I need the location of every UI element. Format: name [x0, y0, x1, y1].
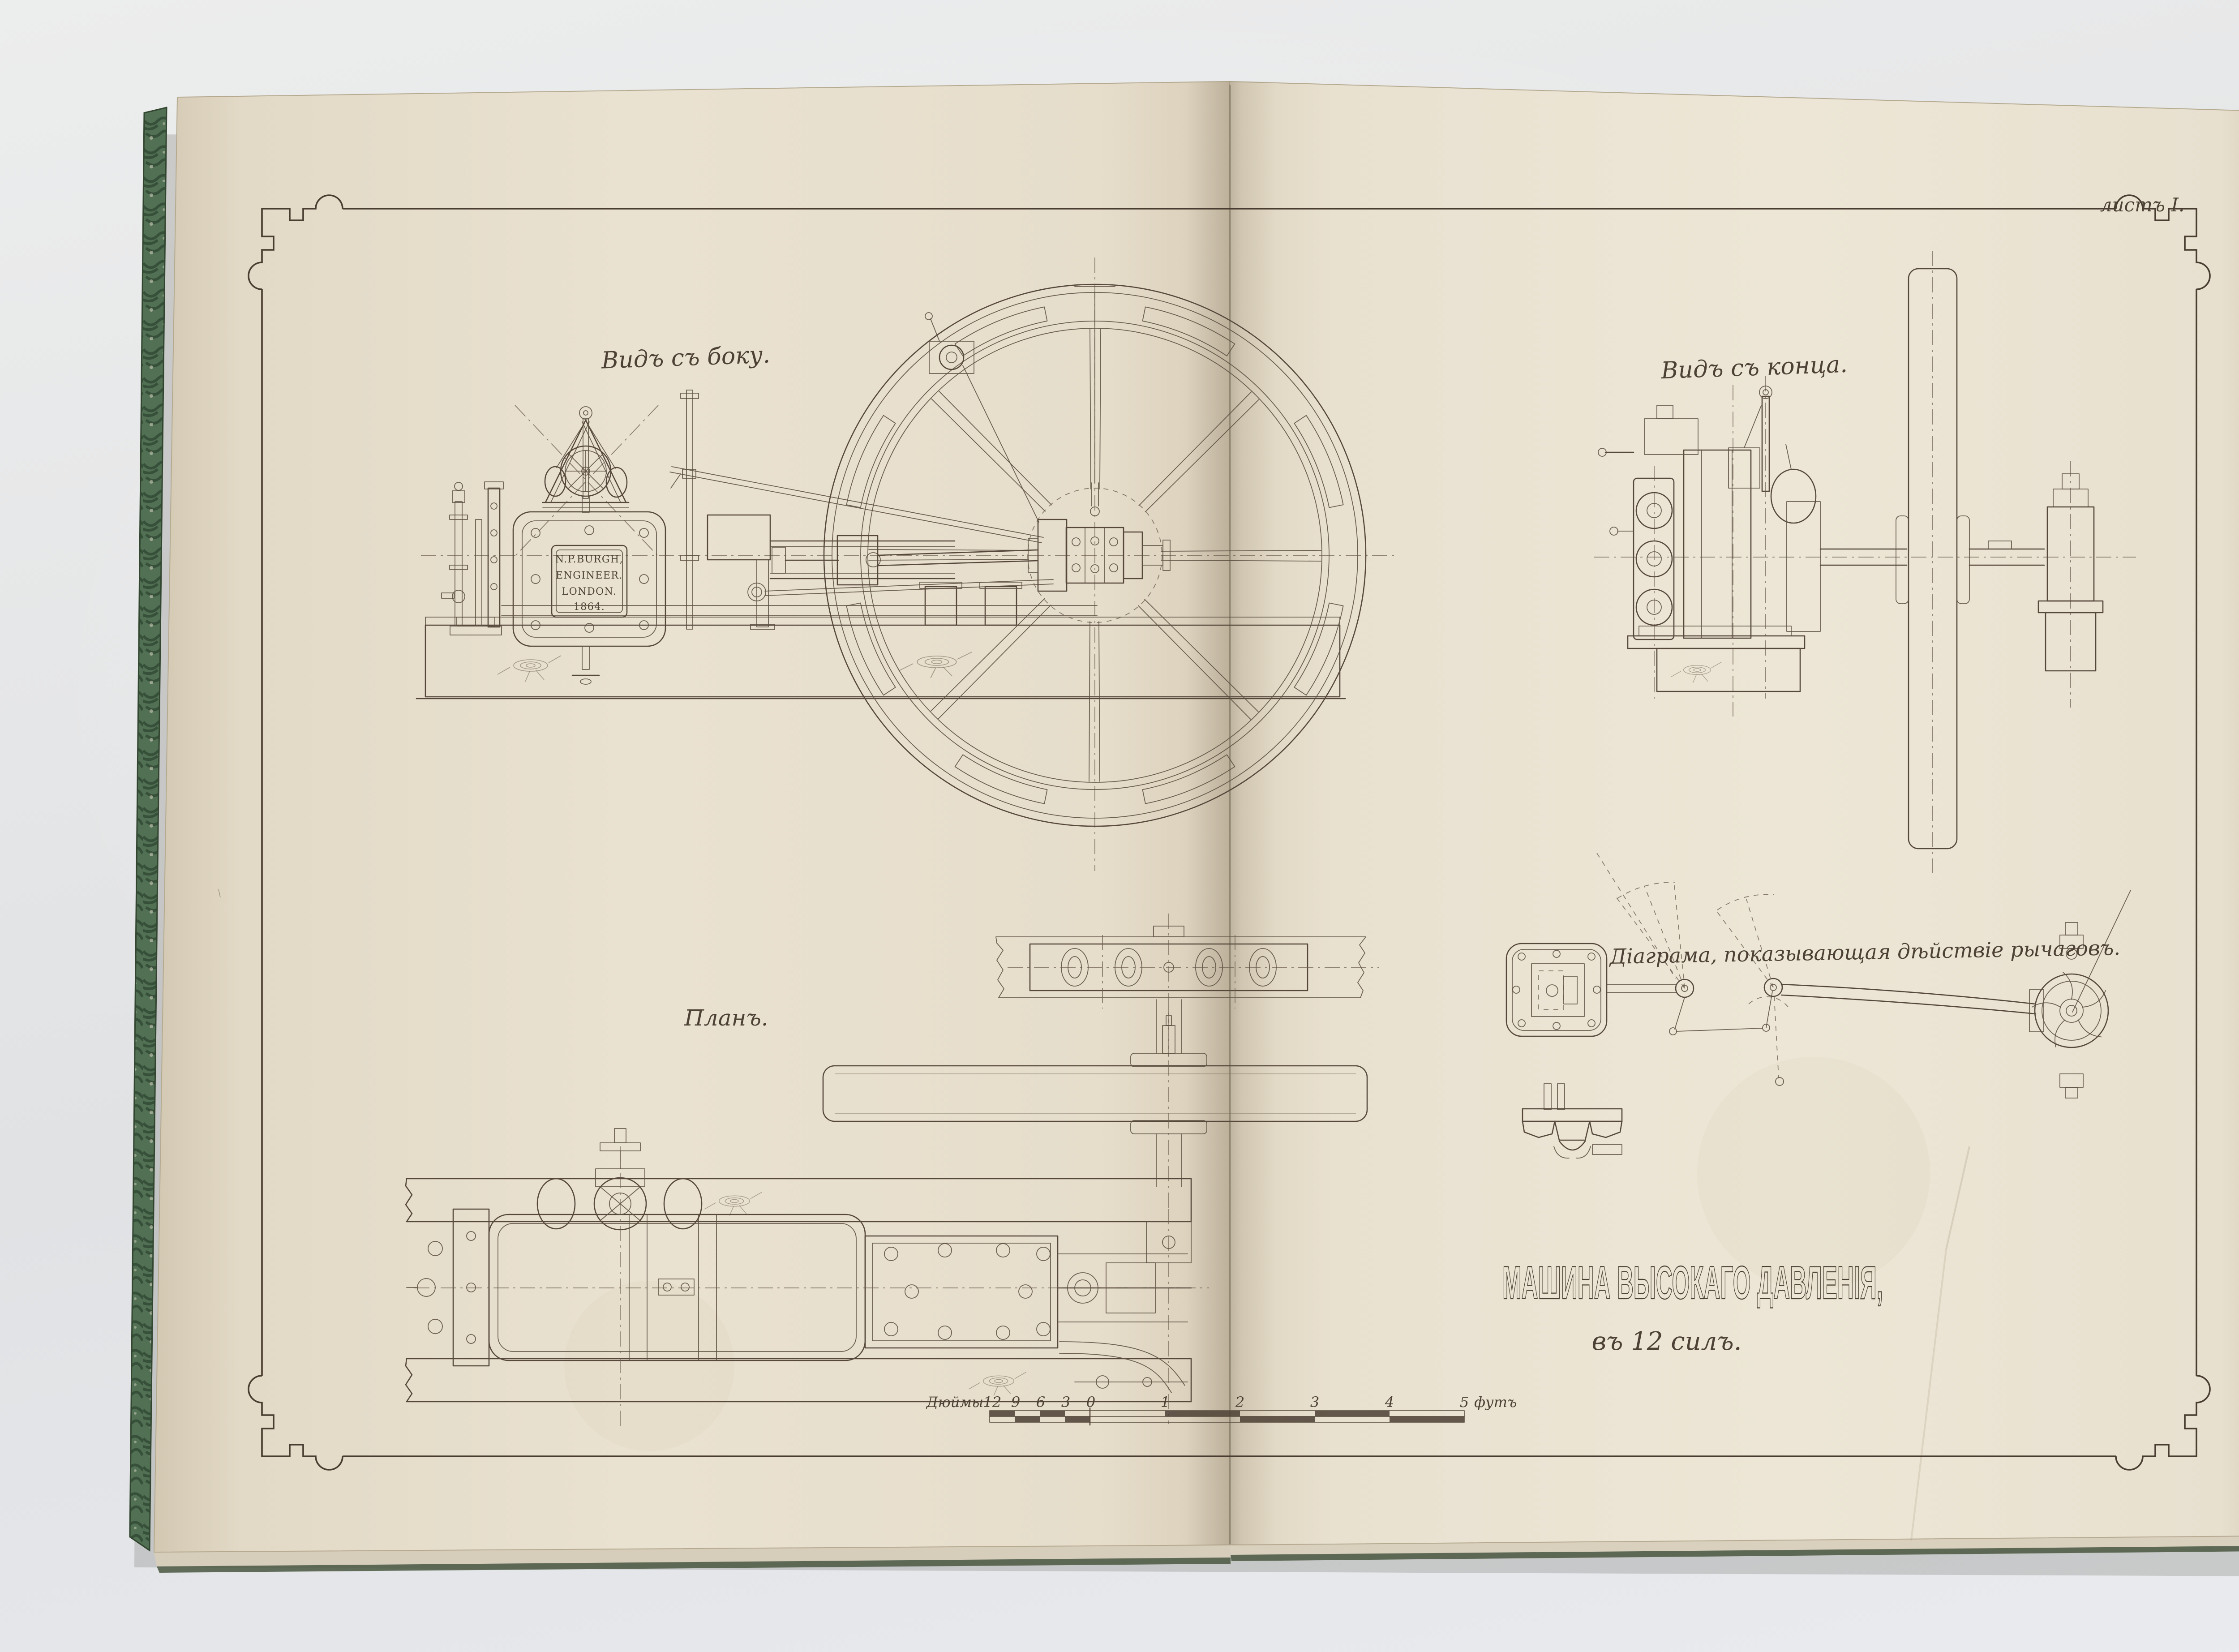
plate-subtitle: въ 12 силъ.	[1592, 1327, 1742, 1356]
book-photo: листъ I.	[0, 0, 2239, 1652]
maker-plate-line-2: ENGINEER.	[556, 570, 623, 581]
scale-tick-4ft: 4	[1385, 1394, 1394, 1411]
paper-stain	[1697, 1057, 1930, 1290]
plate-title: МАШИНА ВЫСОКАГО ДАВЛЕНІЯ,	[1502, 1257, 1883, 1309]
scale-unit-inches: Дюймы	[926, 1394, 983, 1411]
book	[130, 82, 2239, 1576]
right-page	[1229, 82, 2239, 1545]
scale-tick-12in: 12	[983, 1394, 1002, 1411]
scale-tick-3in: 3	[1061, 1394, 1070, 1411]
scale-unit-feet: футъ	[1474, 1394, 1517, 1411]
maker-plate-line-4: 1864.	[574, 601, 605, 613]
scale-tick-9in: 9	[1011, 1394, 1020, 1411]
paper-stain-2	[564, 1281, 734, 1451]
sheet-number-label: листъ I.	[2100, 194, 2184, 216]
scale-tick-3ft: 3	[1310, 1394, 1319, 1411]
scale-tick-0: 0	[1086, 1394, 1095, 1411]
scale-tick-1ft: 1	[1161, 1394, 1170, 1411]
scale-tick-5ft: 5	[1460, 1394, 1469, 1411]
plate-scan: листъ I.	[0, 0, 2239, 1652]
scale-tick-2ft: 2	[1235, 1394, 1244, 1411]
maker-plate-line-1: N.P.BURGH,	[555, 554, 623, 565]
scale-tick-6in: 6	[1036, 1394, 1045, 1411]
plan-label: Планъ.	[684, 1005, 768, 1031]
maker-plate-line-3: LONDON.	[562, 586, 617, 597]
